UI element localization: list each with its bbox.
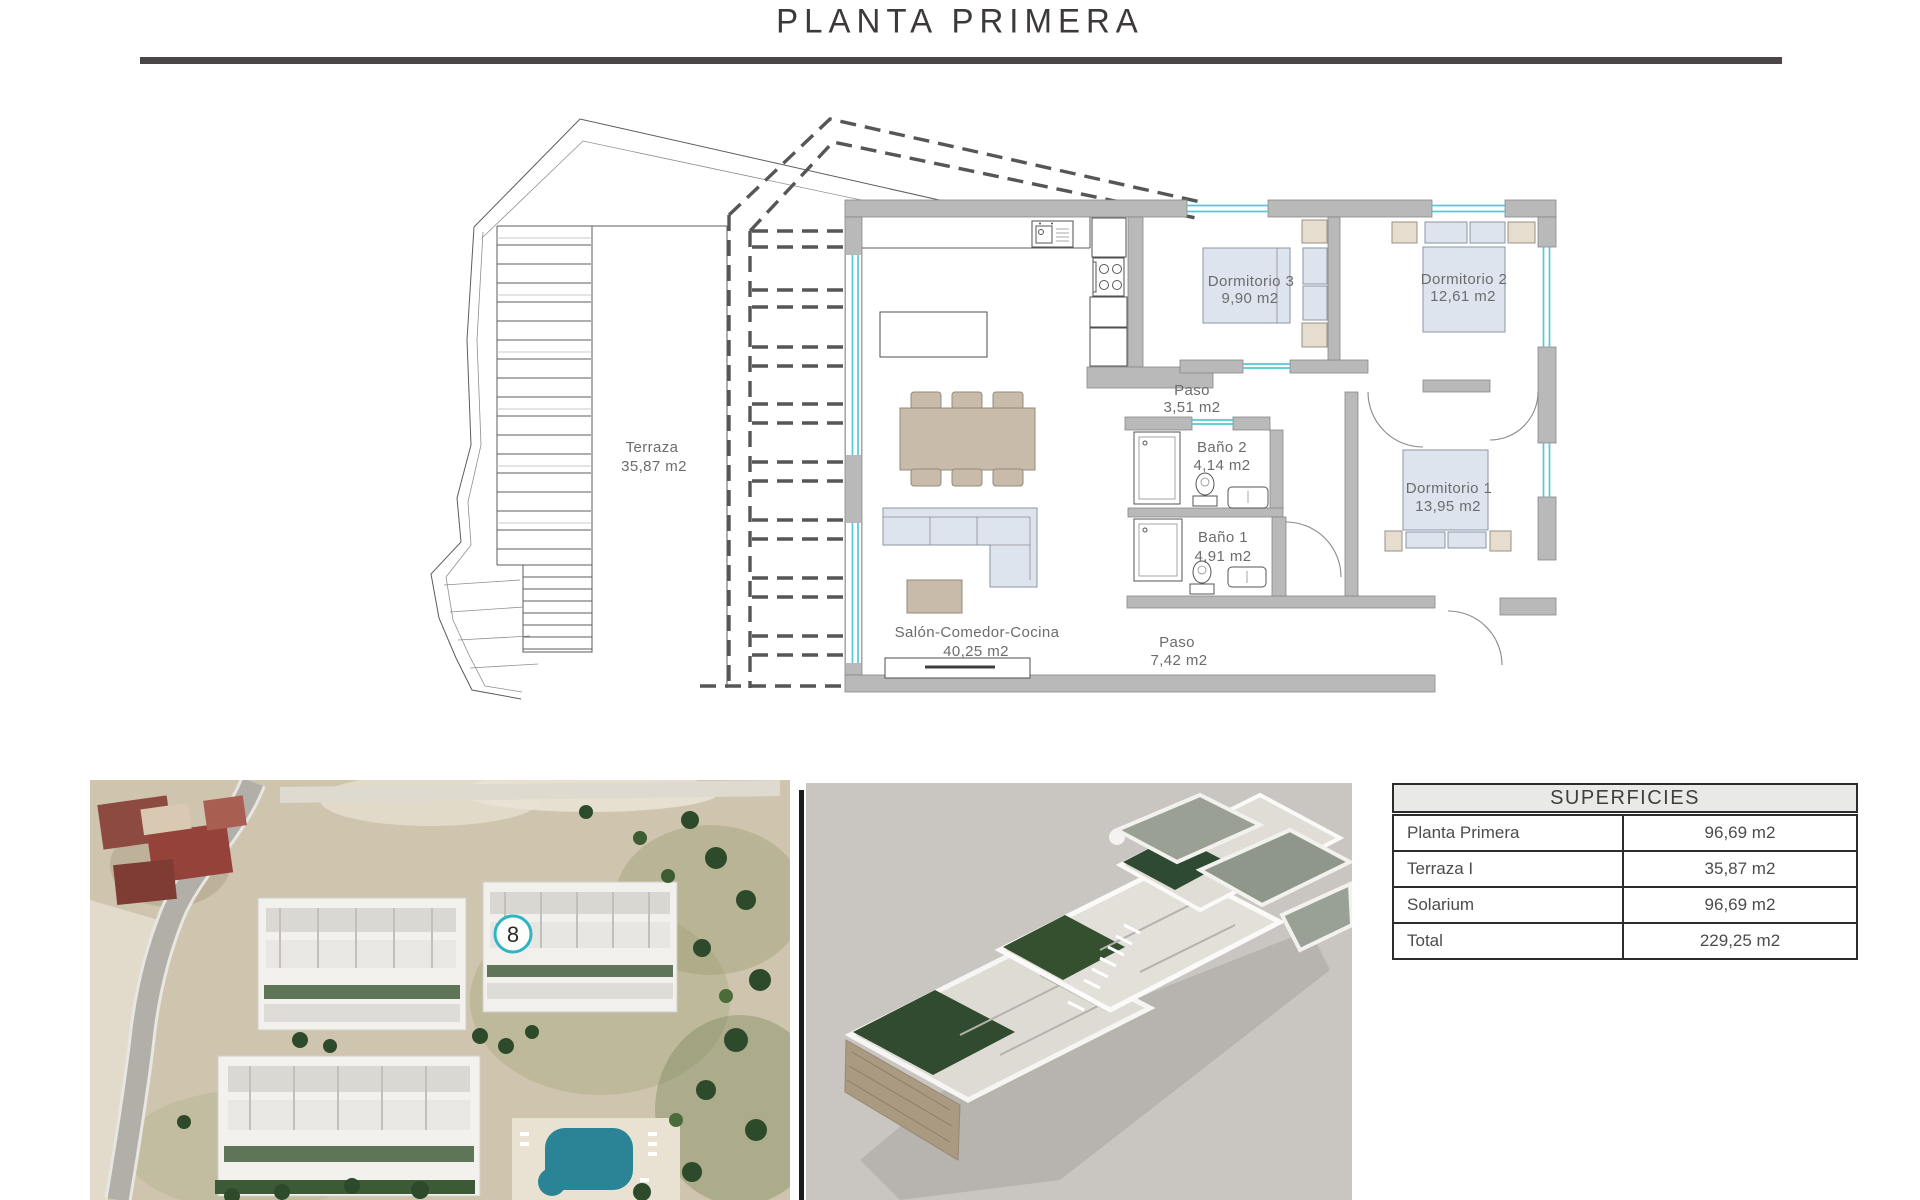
room-area-salon: 40,25 m2 <box>943 643 1009 660</box>
sink-bano1 <box>1228 567 1266 587</box>
pool-area <box>512 1118 680 1200</box>
room-labels: Terraza 35,87 m2 Salón-Comedor-Cocina 40… <box>621 271 1507 669</box>
floor-plan: Terraza 35,87 m2 Salón-Comedor-Cocina 40… <box>0 0 1920 760</box>
room-label-dormitorio-2: Dormitorio 2 <box>1421 271 1508 288</box>
row-label: Total <box>1394 924 1624 958</box>
table-row: Total 229,25 m2 <box>1394 922 1856 958</box>
superficies-table-body: Planta Primera 96,69 m2 Terraza I 35,87 … <box>1392 814 1858 960</box>
dining-table <box>900 392 1035 486</box>
room-area-dormitorio-1: 13,95 m2 <box>1415 498 1481 515</box>
kitchen-sink <box>1032 221 1073 247</box>
room-area-terraza: 35,87 m2 <box>621 458 687 475</box>
table-row: Terraza I 35,87 m2 <box>1394 850 1856 886</box>
room-label-paso-7: Paso <box>1159 634 1195 651</box>
toilet-bano2 <box>1193 473 1217 506</box>
sink-bano2 <box>1228 487 1268 508</box>
row-label: Planta Primera <box>1394 816 1624 850</box>
isometric-render <box>806 783 1352 1200</box>
room-label-terraza: Terraza <box>626 439 679 456</box>
room-area-paso-7: 7,42 m2 <box>1151 652 1208 669</box>
room-label-bano-2: Baño 2 <box>1197 439 1247 456</box>
room-area-dormitorio-2: 12,61 m2 <box>1430 288 1496 305</box>
room-area-bano-1: 4,91 m2 <box>1195 548 1252 565</box>
superficies-table: SUPERFICIES Planta Primera 96,69 m2 Terr… <box>1392 783 1858 960</box>
unit-number-badge: 8 <box>495 916 531 952</box>
room-area-bano-2: 4,14 m2 <box>1194 457 1251 474</box>
row-value: 96,69 m2 <box>1624 888 1856 922</box>
sofa <box>883 508 1037 587</box>
stove <box>1090 218 1127 366</box>
coffee-table <box>907 580 962 613</box>
row-value: 35,87 m2 <box>1624 852 1856 886</box>
superficies-table-header: SUPERFICIES <box>1392 783 1858 813</box>
row-label: Solarium <box>1394 888 1624 922</box>
room-label-paso-3: Paso <box>1174 382 1210 399</box>
shower-bano1 <box>1134 519 1182 581</box>
room-label-dormitorio-1: Dormitorio 1 <box>1406 480 1493 497</box>
tv-bench <box>885 658 1030 678</box>
room-label-salon: Salón-Comedor-Cocina <box>895 624 1060 641</box>
row-label: Terraza I <box>1394 852 1624 886</box>
room-label-bano-1: Baño 1 <box>1198 529 1248 546</box>
table-row: Solarium 96,69 m2 <box>1394 886 1856 922</box>
room-label-dormitorio-3: Dormitorio 3 <box>1208 273 1295 290</box>
room-area-paso-3: 3,51 m2 <box>1164 399 1221 416</box>
panel-divider <box>799 790 804 1200</box>
row-value: 229,25 m2 <box>1624 924 1856 958</box>
table-row: Planta Primera 96,69 m2 <box>1394 816 1856 850</box>
unit-number: 8 <box>507 922 519 947</box>
aerial-site-photo: 8 <box>90 780 790 1200</box>
shower-bano2 <box>1134 432 1180 504</box>
room-area-dormitorio-3: 9,90 m2 <box>1222 290 1279 307</box>
toilet-bano1 <box>1190 561 1214 594</box>
row-value: 96,69 m2 <box>1624 816 1856 850</box>
kitchen-island <box>880 312 987 357</box>
